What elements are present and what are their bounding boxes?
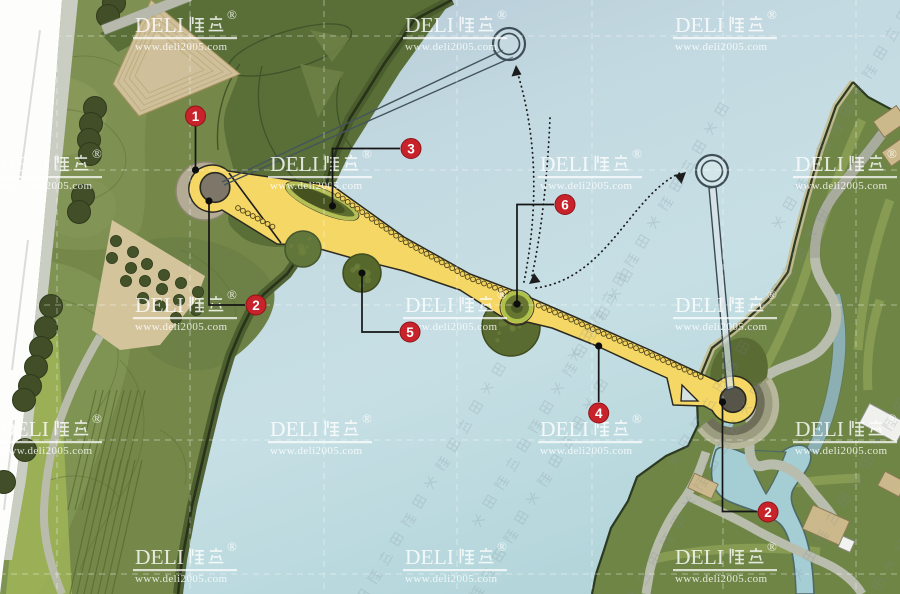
svg-text:®: ® bbox=[887, 411, 897, 426]
svg-text:www.deli2005.com: www.deli2005.com bbox=[270, 445, 362, 457]
svg-text:DELI: DELI bbox=[675, 13, 724, 37]
svg-text:®: ® bbox=[887, 146, 897, 161]
svg-text:®: ® bbox=[497, 7, 507, 22]
svg-text:®: ® bbox=[497, 287, 507, 302]
svg-text:®: ® bbox=[632, 146, 642, 161]
svg-text:®: ® bbox=[92, 411, 102, 426]
svg-text:www.deli2005.com: www.deli2005.com bbox=[135, 321, 227, 333]
svg-text:www.deli2005.com: www.deli2005.com bbox=[135, 573, 227, 585]
svg-text:2: 2 bbox=[252, 298, 260, 313]
svg-text:DELI: DELI bbox=[0, 417, 49, 441]
svg-text:www.deli2005.com: www.deli2005.com bbox=[795, 180, 887, 192]
svg-text:®: ® bbox=[767, 7, 777, 22]
svg-text:4: 4 bbox=[595, 406, 603, 421]
svg-text:www.deli2005.com: www.deli2005.com bbox=[675, 41, 767, 53]
svg-text:®: ® bbox=[227, 7, 237, 22]
svg-text:DELI: DELI bbox=[0, 152, 49, 176]
svg-text:DELI: DELI bbox=[405, 13, 454, 37]
svg-text:www.deli2005.com: www.deli2005.com bbox=[270, 180, 362, 192]
svg-text:DELI: DELI bbox=[270, 152, 319, 176]
svg-text:www.deli2005.com: www.deli2005.com bbox=[675, 573, 767, 585]
svg-text:DELI: DELI bbox=[135, 545, 184, 569]
svg-text:®: ® bbox=[497, 539, 507, 554]
svg-text:®: ® bbox=[632, 411, 642, 426]
svg-text:®: ® bbox=[92, 146, 102, 161]
svg-text:DELI: DELI bbox=[405, 293, 454, 317]
svg-text:www.deli2005.com: www.deli2005.com bbox=[675, 321, 767, 333]
svg-text:DELI: DELI bbox=[540, 152, 589, 176]
svg-text:DELI: DELI bbox=[675, 293, 724, 317]
svg-text:®: ® bbox=[227, 539, 237, 554]
svg-text:6: 6 bbox=[561, 197, 569, 212]
svg-text:®: ® bbox=[227, 287, 237, 302]
svg-text:3: 3 bbox=[407, 141, 415, 156]
svg-text:www.deli2005.com: www.deli2005.com bbox=[540, 445, 632, 457]
svg-text:DELI: DELI bbox=[135, 293, 184, 317]
svg-text:2: 2 bbox=[764, 505, 772, 520]
svg-text:®: ® bbox=[767, 539, 777, 554]
svg-text:1: 1 bbox=[192, 109, 200, 124]
svg-text:DELI: DELI bbox=[795, 417, 844, 441]
svg-text:www.deli2005.com: www.deli2005.com bbox=[0, 445, 92, 457]
svg-text:DELI: DELI bbox=[270, 417, 319, 441]
svg-text:5: 5 bbox=[406, 325, 414, 340]
svg-text:www.deli2005.com: www.deli2005.com bbox=[540, 180, 632, 192]
svg-text:www.deli2005.com: www.deli2005.com bbox=[405, 41, 497, 53]
svg-text:DELI: DELI bbox=[795, 152, 844, 176]
svg-text:www.deli2005.com: www.deli2005.com bbox=[0, 180, 92, 192]
svg-text:DELI: DELI bbox=[135, 13, 184, 37]
svg-text:www.deli2005.com: www.deli2005.com bbox=[405, 573, 497, 585]
svg-text:DELI: DELI bbox=[540, 417, 589, 441]
svg-text:www.deli2005.com: www.deli2005.com bbox=[135, 41, 227, 53]
svg-text:DELI: DELI bbox=[405, 545, 454, 569]
svg-text:www.deli2005.com: www.deli2005.com bbox=[795, 445, 887, 457]
svg-text:®: ® bbox=[362, 411, 372, 426]
svg-text:®: ® bbox=[767, 287, 777, 302]
svg-text:DELI: DELI bbox=[675, 545, 724, 569]
